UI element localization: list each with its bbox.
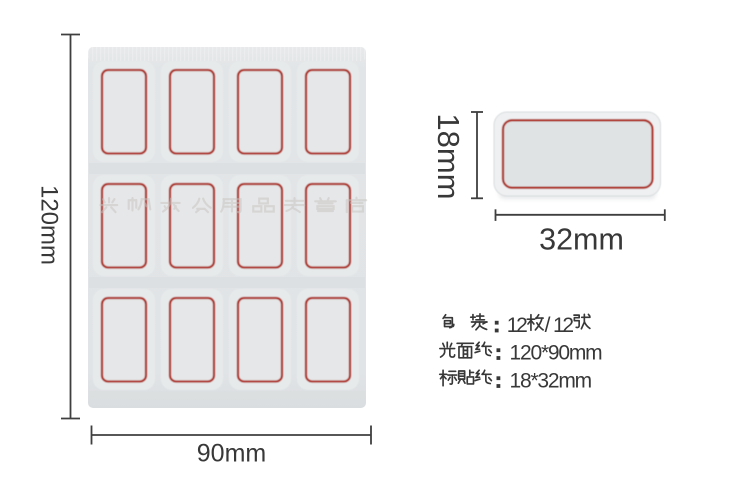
svg-text:12: 12 (553, 314, 573, 337)
svg-text:32mm: 32mm (539, 223, 624, 257)
svg-text:120mm: 120mm (36, 185, 63, 265)
svg-text:18mm: 18mm (431, 113, 466, 199)
svg-text:120*90mm: 120*90mm (510, 342, 603, 365)
svg-text:/: / (545, 314, 551, 337)
svg-text:18*32mm: 18*32mm (510, 370, 592, 393)
svg-text:12: 12 (507, 314, 527, 337)
svg-text:90mm: 90mm (197, 440, 266, 468)
